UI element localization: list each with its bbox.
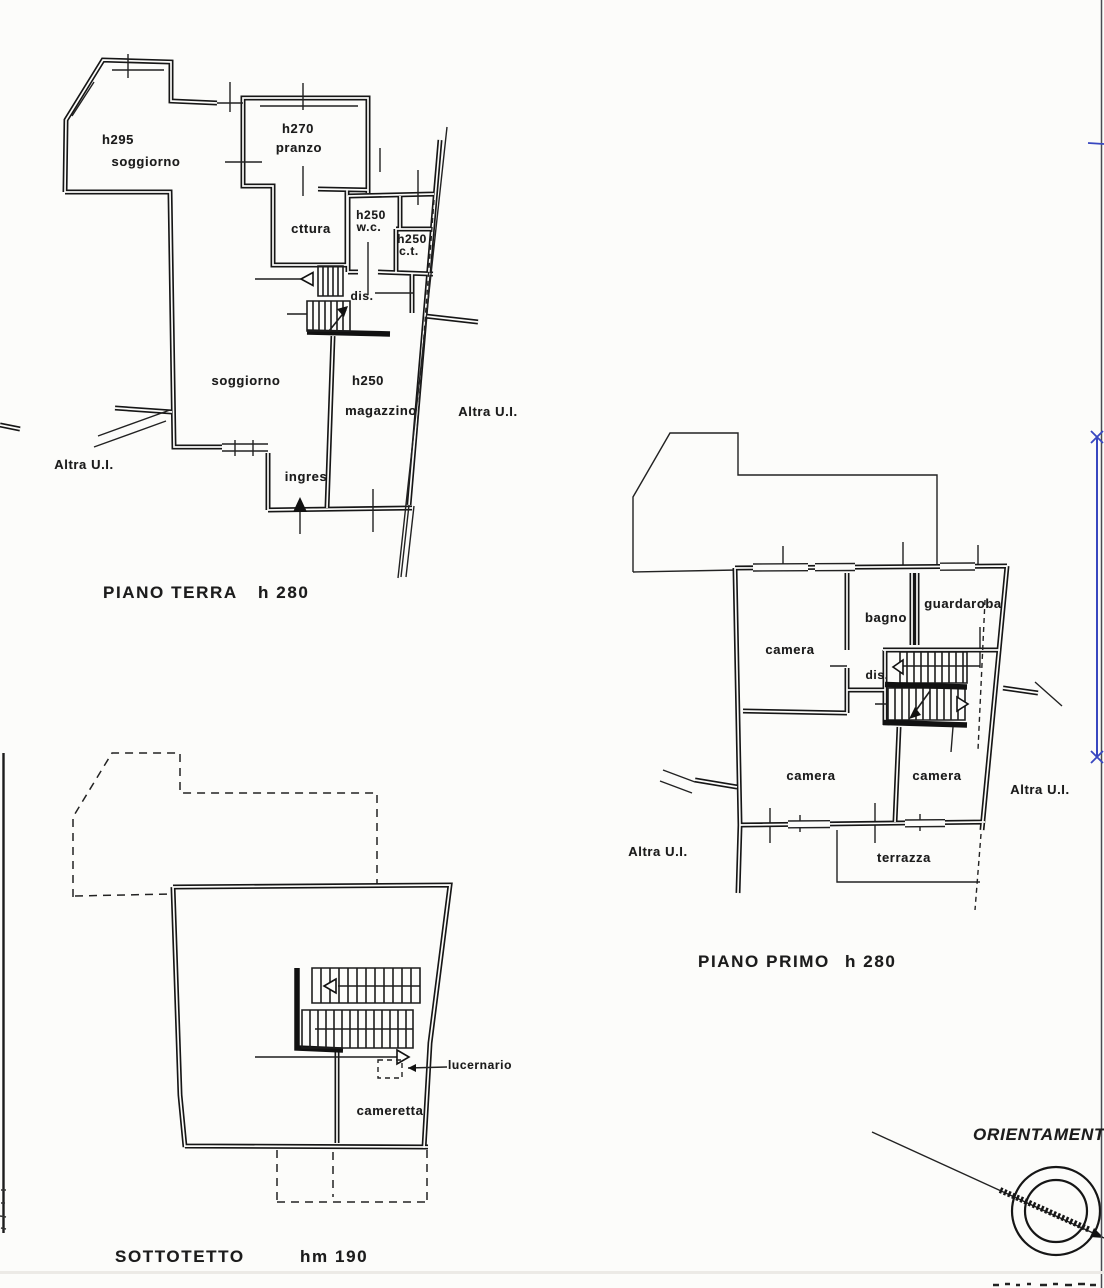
compass-icon xyxy=(872,1132,1104,1255)
floor-height-first: h 280 xyxy=(845,953,896,971)
entrance-door-arrow xyxy=(293,497,307,512)
floor-height-ground: h 280 xyxy=(258,584,309,602)
floor-height-attic: hm 190 xyxy=(300,1248,368,1266)
room-label-cameretta: cameretta xyxy=(357,1104,424,1118)
room-label-ct: c.t. xyxy=(399,245,419,258)
room-label-camera-sw: camera xyxy=(786,769,835,783)
room-height-pranzo: h270 xyxy=(282,122,314,136)
room-label-camera-se: camera xyxy=(912,769,961,783)
plan-drawing xyxy=(0,0,1104,1288)
floor-title-attic: SOTTOTETTO xyxy=(115,1248,245,1266)
skylight-symbol xyxy=(378,1060,447,1078)
room-label-ingresso: ingres xyxy=(285,470,328,484)
compass-label: ORIENTAMENT xyxy=(973,1126,1104,1144)
adjacent-unit-label-gf-right: Altra U.I. xyxy=(458,405,517,419)
room-label-wc: w.c. xyxy=(357,221,382,234)
room-label-terrazza: terrazza xyxy=(877,851,931,865)
floor-title-ground: PIANO TERRA xyxy=(103,584,238,602)
room-label-soggiorno-small: soggiorno xyxy=(112,155,181,169)
room-label-camera-nw: camera xyxy=(765,643,814,657)
room-label-dis-ff: dis. xyxy=(865,669,888,682)
adjacent-unit-label-ff-right: Altra U.I. xyxy=(1010,783,1069,797)
stairs-ground-floor xyxy=(255,266,350,331)
room-height-magazzino: h250 xyxy=(352,374,384,388)
first-floor-plan xyxy=(633,433,1062,910)
ground-floor-plan xyxy=(0,54,478,578)
room-label-cottura: cttura xyxy=(291,222,331,236)
clipped-bottom-text xyxy=(0,1271,1104,1285)
page-border-left xyxy=(0,753,6,1233)
room-label-magazzino: magazzino xyxy=(345,404,417,418)
floorplan-sheet: h295 soggiorno h270 pranzo cttura h250 w… xyxy=(0,0,1104,1288)
room-height-soggiorno-small: h295 xyxy=(102,133,134,147)
attic-plan xyxy=(73,753,450,1202)
room-label-bagno: bagno xyxy=(865,611,907,625)
adjacent-unit-label-gf-left: Altra U.I. xyxy=(54,458,113,472)
floor-title-first: PIANO PRIMO xyxy=(698,953,830,971)
room-label-guardaroba: guardaroba xyxy=(924,597,1002,611)
north-needle xyxy=(872,1132,1104,1238)
room-label-pranzo: pranzo xyxy=(276,141,322,155)
room-label-dis-gf: dis. xyxy=(350,290,373,303)
skylight-label: lucernario xyxy=(448,1059,512,1072)
stairs-first-floor xyxy=(875,652,980,725)
adjacent-unit-label-ff-left: Altra U.I. xyxy=(628,845,687,859)
room-label-soggiorno-main: soggiorno xyxy=(212,374,281,388)
